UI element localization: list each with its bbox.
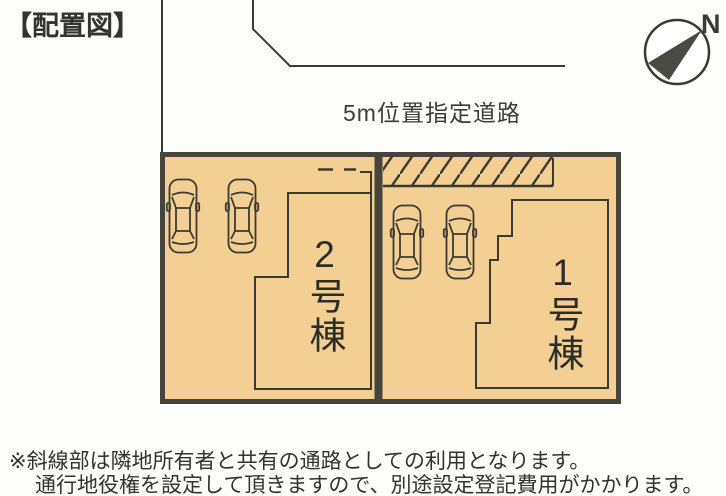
site-plan-canvas: 【配置図】 N [0, 0, 726, 496]
road-name-label: 5m位置指定道路 [343, 94, 521, 128]
plot-divider [375, 156, 383, 400]
note-line-2: 通行地役権を設定して頂きますので、別途設定登記費用がかかります。 [35, 469, 703, 496]
north-compass-icon: N [645, 9, 721, 84]
road-boundary-line [253, 0, 565, 66]
building-2-label: 2号棟 [306, 234, 343, 355]
site-plan-drawing: N [0, 0, 726, 496]
building-1-label: 1号棟 [544, 252, 581, 373]
north-label: N [701, 9, 721, 39]
shared-passage-hatched-area [383, 157, 553, 186]
